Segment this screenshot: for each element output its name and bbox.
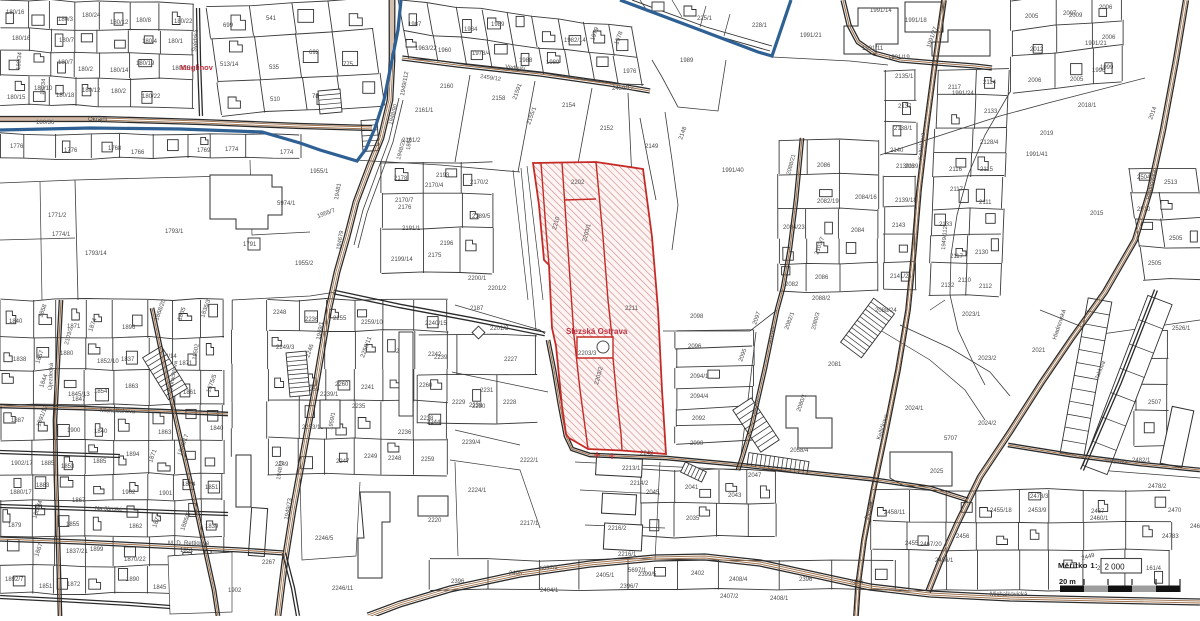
- svg-text:2098: 2098: [690, 314, 704, 320]
- svg-text:2189/5: 2189/5: [472, 214, 491, 220]
- svg-text:1955/2: 1955/2: [295, 261, 314, 267]
- svg-text:M. D. Rettigové: M. D. Rettigové: [168, 541, 210, 547]
- svg-text:2137: 2137: [898, 104, 912, 110]
- svg-text:1885: 1885: [93, 459, 107, 465]
- svg-text:1793/1: 1793/1: [165, 229, 184, 235]
- svg-text:2187: 2187: [470, 306, 484, 312]
- svg-text:2249: 2249: [364, 454, 378, 460]
- svg-text:180/12: 180/12: [82, 88, 101, 94]
- svg-text:2170/7: 2170/7: [395, 198, 414, 204]
- svg-text:2088/24: 2088/24: [875, 308, 897, 314]
- svg-text:180/14: 180/14: [110, 68, 129, 74]
- svg-text:2405/1: 2405/1: [596, 573, 615, 579]
- svg-text:180/18: 180/18: [56, 93, 75, 99]
- svg-text:1991/11: 1991/11: [862, 46, 884, 52]
- svg-text:699: 699: [223, 23, 234, 29]
- svg-text:2507: 2507: [1148, 400, 1162, 406]
- svg-text:2193: 2193: [436, 173, 450, 179]
- svg-text:1851: 1851: [205, 485, 219, 491]
- svg-text:775: 775: [343, 62, 354, 68]
- svg-text:2201/2: 2201/2: [488, 286, 507, 292]
- svg-text:2025: 2025: [930, 469, 944, 475]
- svg-text:2094/4: 2094/4: [690, 394, 709, 400]
- svg-text:2236: 2236: [398, 430, 412, 436]
- svg-text:2006: 2006: [1099, 5, 1113, 11]
- svg-text:1988: 1988: [519, 58, 533, 64]
- svg-text:180/16: 180/16: [6, 10, 25, 16]
- svg-text:1863: 1863: [158, 430, 172, 436]
- svg-text:Okrajní: Okrajní: [88, 117, 108, 123]
- svg-text:1991/40: 1991/40: [722, 168, 744, 174]
- svg-text:1899: 1899: [90, 547, 104, 553]
- svg-text:2478/3: 2478/3: [1030, 494, 1049, 500]
- svg-text:2088/2: 2088/2: [812, 296, 831, 302]
- svg-text:2229: 2229: [452, 400, 466, 406]
- svg-text:2005: 2005: [1025, 14, 1039, 20]
- svg-text:Slezská Ostrava: Slezská Ostrava: [566, 327, 628, 336]
- svg-text:180/3: 180/3: [58, 17, 74, 23]
- svg-text:180/1: 180/1: [168, 39, 184, 45]
- svg-text:2043: 2043: [728, 493, 742, 499]
- svg-text:2082/19: 2082/19: [817, 199, 839, 205]
- svg-text:2259: 2259: [421, 457, 435, 463]
- svg-text:2084/16: 2084/16: [855, 195, 877, 201]
- svg-text:2504: 2504: [1137, 175, 1151, 181]
- svg-text:1853: 1853: [61, 464, 75, 470]
- svg-text:2007: 2007: [1063, 11, 1077, 17]
- svg-text:2407/2: 2407/2: [720, 594, 739, 600]
- svg-text:2248: 2248: [273, 310, 287, 316]
- svg-text:2455/18: 2455/18: [990, 508, 1012, 514]
- svg-text:2456/1: 2456/1: [935, 558, 954, 564]
- svg-text:1887: 1887: [11, 418, 25, 424]
- svg-text:1880/17: 1880/17: [10, 490, 32, 496]
- svg-text:2082: 2082: [785, 282, 799, 288]
- svg-text:1963/22: 1963/22: [415, 46, 437, 52]
- svg-text:180/2: 180/2: [78, 67, 94, 73]
- svg-text:2222/1: 2222/1: [520, 458, 539, 464]
- svg-text:2227: 2227: [504, 357, 518, 363]
- svg-text:2130: 2130: [975, 250, 989, 256]
- svg-text:180/19: 180/19: [136, 61, 155, 67]
- svg-text:2161/1: 2161/1: [415, 108, 434, 114]
- svg-text:2505: 2505: [1169, 236, 1183, 242]
- svg-text:2408/4: 2408/4: [729, 577, 748, 583]
- svg-text:2199/14: 2199/14: [391, 257, 413, 263]
- svg-text:2140: 2140: [890, 148, 904, 154]
- svg-text:2018/1: 2018/1: [1078, 103, 1097, 109]
- svg-text:5707: 5707: [944, 436, 958, 442]
- svg-text:1991/14: 1991/14: [870, 8, 892, 14]
- svg-text:Na Jánské: Na Jánské: [95, 506, 123, 513]
- svg-text:2175: 2175: [428, 253, 442, 259]
- svg-text:2238: 2238: [420, 416, 434, 422]
- svg-text:1872: 1872: [67, 582, 81, 588]
- svg-text:2139: 2139: [905, 164, 919, 170]
- svg-text:2453/9: 2453/9: [1028, 508, 1047, 514]
- svg-text:2224/1: 2224/1: [468, 488, 487, 494]
- svg-text:1776: 1776: [10, 144, 24, 150]
- svg-text:2133: 2133: [984, 109, 998, 115]
- svg-text:2513: 2513: [1164, 180, 1178, 186]
- svg-text:2111: 2111: [979, 200, 992, 206]
- svg-text:2203/3: 2203/3: [578, 351, 597, 357]
- svg-text:2045: 2045: [646, 490, 660, 496]
- svg-text:2110: 2110: [958, 278, 972, 284]
- svg-text:2138/1: 2138/1: [894, 126, 913, 132]
- svg-text:2236: 2236: [305, 317, 319, 323]
- svg-text:1900: 1900: [67, 428, 81, 434]
- svg-text:180/12: 180/12: [110, 20, 129, 26]
- svg-text:2246/5: 2246/5: [315, 536, 334, 542]
- svg-text:1861: 1861: [406, 137, 413, 150]
- svg-text:2086: 2086: [815, 275, 829, 281]
- svg-text:1890: 1890: [126, 577, 140, 583]
- svg-text:2230: 2230: [472, 404, 486, 410]
- svg-text:1863: 1863: [125, 384, 139, 390]
- svg-text:2092: 2092: [692, 416, 706, 422]
- svg-text:2214/2: 2214/2: [630, 481, 649, 487]
- svg-text:2235: 2235: [352, 404, 366, 410]
- svg-text:2015: 2015: [1090, 211, 1104, 217]
- svg-text:2455: 2455: [905, 541, 919, 547]
- svg-text:2149: 2149: [645, 144, 659, 150]
- svg-text:2239/4: 2239/4: [462, 440, 481, 446]
- svg-text:2460/1: 2460/1: [1090, 516, 1109, 522]
- svg-text:1885: 1885: [41, 461, 55, 467]
- svg-text:2035: 2035: [686, 516, 700, 522]
- svg-text:2024/2: 2024/2: [978, 421, 997, 427]
- svg-text:1855: 1855: [66, 522, 80, 528]
- svg-text:180/22: 180/22: [142, 94, 161, 100]
- svg-text:2006: 2006: [1028, 78, 1042, 84]
- svg-text:2456: 2456: [956, 534, 970, 540]
- svg-text:2019: 2019: [1040, 131, 1054, 137]
- svg-text:2213/1: 2213/1: [622, 466, 641, 472]
- svg-text:2 000: 2 000: [1105, 563, 1126, 572]
- svg-text:2012: 2012: [1030, 47, 1044, 53]
- svg-text:1989: 1989: [491, 22, 505, 28]
- svg-text:1894: 1894: [126, 452, 140, 458]
- svg-text:225/1: 225/1: [697, 16, 713, 22]
- svg-text:2240/15: 2240/15: [425, 321, 447, 327]
- svg-text:1976: 1976: [623, 69, 637, 75]
- svg-text:2404/1: 2404/1: [540, 588, 559, 594]
- svg-text:1871: 1871: [179, 361, 193, 367]
- svg-text:1851: 1851: [39, 584, 53, 590]
- svg-text:2116: 2116: [949, 167, 963, 173]
- svg-text:1991/24: 1991/24: [952, 91, 974, 97]
- svg-text:692: 692: [309, 50, 320, 56]
- svg-text:1901: 1901: [159, 491, 173, 497]
- svg-text:24783: 24783: [1162, 534, 1179, 540]
- svg-text:2402: 2402: [691, 571, 705, 577]
- svg-text:1982/14: 1982/14: [564, 38, 586, 44]
- svg-text:Újezdecká: Újezdecká: [47, 362, 55, 390]
- svg-text:180/36: 180/36: [36, 120, 55, 126]
- svg-text:2248: 2248: [388, 456, 402, 462]
- svg-text:1852/10: 1852/10: [97, 359, 119, 365]
- svg-text:1838: 1838: [13, 357, 27, 363]
- svg-text:2114: 2114: [983, 80, 997, 86]
- svg-text:541: 541: [266, 16, 277, 22]
- svg-text:2160: 2160: [440, 84, 454, 90]
- svg-text:2021: 2021: [1032, 348, 1046, 354]
- svg-text:2220: 2220: [428, 518, 442, 524]
- svg-text:1854: 1854: [94, 389, 108, 395]
- svg-text:228/1: 228/1: [752, 23, 768, 29]
- svg-text:2024/1: 2024/1: [905, 406, 924, 412]
- svg-text:2094/1: 2094/1: [690, 374, 709, 380]
- svg-text:2152: 2152: [600, 126, 614, 132]
- svg-text:2482/1: 2482/1: [1132, 458, 1151, 464]
- svg-text:535: 535: [269, 65, 280, 71]
- svg-text:513/14: 513/14: [220, 62, 239, 68]
- svg-text:1991/19: 1991/19: [888, 55, 910, 61]
- svg-text:2408/1: 2408/1: [770, 596, 789, 602]
- svg-text:1840: 1840: [94, 429, 108, 435]
- svg-text:Michalčakova: Michalčakova: [100, 408, 136, 415]
- svg-text:2217/1: 2217/1: [520, 521, 539, 527]
- svg-text:2170/2: 2170/2: [470, 180, 489, 186]
- svg-text:2139/18: 2139/18: [895, 198, 917, 204]
- svg-text:1791: 1791: [243, 242, 257, 248]
- svg-text:2023/1: 2023/1: [962, 312, 981, 318]
- svg-text:1902: 1902: [228, 588, 242, 594]
- svg-text:2467/20: 2467/20: [920, 542, 942, 548]
- svg-text:2470: 2470: [1168, 508, 1182, 514]
- svg-text:2216/1: 2216/1: [618, 552, 637, 558]
- svg-text:2216/2: 2216/2: [608, 526, 627, 532]
- svg-text:2112: 2112: [979, 284, 993, 290]
- svg-text:2154: 2154: [562, 103, 576, 109]
- svg-text:2081: 2081: [828, 362, 842, 368]
- svg-text:2178: 2178: [394, 176, 408, 182]
- svg-text:1896: 1896: [122, 325, 136, 331]
- svg-text:2115: 2115: [980, 167, 994, 173]
- svg-text:2246/11: 2246/11: [332, 586, 354, 592]
- svg-text:1955/1: 1955/1: [310, 169, 329, 175]
- svg-text:Muglinov: Muglinov: [180, 63, 214, 72]
- svg-text:2459/12: 2459/12: [612, 86, 634, 92]
- svg-text:2396/7: 2396/7: [620, 584, 639, 590]
- svg-text:Michalkovická: Michalkovická: [990, 592, 1028, 598]
- svg-text:1845: 1845: [153, 585, 167, 591]
- svg-text:2041: 2041: [685, 485, 699, 491]
- svg-text:1771/2: 1771/2: [48, 213, 67, 219]
- svg-text:2058/4: 2058/4: [790, 448, 809, 454]
- svg-text:2191/1: 2191/1: [402, 226, 421, 232]
- svg-text:180/22: 180/22: [174, 19, 193, 25]
- svg-text:1768: 1768: [108, 146, 122, 152]
- svg-text:2023/2: 2023/2: [978, 356, 997, 362]
- svg-text:1984: 1984: [464, 27, 478, 33]
- svg-text:1870/22: 1870/22: [124, 557, 146, 563]
- svg-text:Měřítko 1:: Měřítko 1:: [1058, 561, 1098, 570]
- svg-text:2260: 2260: [335, 382, 349, 388]
- svg-text:5974/1: 5974/1: [277, 201, 296, 207]
- svg-text:180/15: 180/15: [7, 95, 26, 101]
- svg-text:1837/21: 1837/21: [66, 549, 88, 555]
- svg-text:1766: 1766: [131, 150, 145, 156]
- svg-text:1991/21: 1991/21: [1085, 41, 1107, 47]
- svg-text:2201/3: 2201/3: [490, 326, 509, 332]
- svg-text:2231: 2231: [480, 388, 494, 394]
- svg-text:1861: 1861: [183, 390, 197, 396]
- svg-text:2158: 2158: [492, 96, 506, 102]
- svg-text:1987: 1987: [408, 22, 422, 28]
- svg-text:2170/4: 2170/4: [425, 183, 444, 189]
- svg-text:2505: 2505: [1148, 261, 1162, 267]
- svg-text:1840: 1840: [9, 319, 23, 325]
- svg-text:Bštýřova: Bštýřova: [1105, 458, 1129, 465]
- svg-text:1879: 1879: [8, 523, 22, 529]
- svg-text:1839: 1839: [205, 524, 219, 530]
- svg-text:1774/1: 1774/1: [52, 232, 71, 238]
- svg-text:2047: 2047: [748, 473, 762, 479]
- svg-text:180/2: 180/2: [111, 89, 127, 95]
- svg-text:2247: 2247: [336, 459, 350, 465]
- svg-text:180/8: 180/8: [136, 18, 152, 24]
- svg-text:1892/7: 1892/7: [5, 577, 24, 583]
- svg-text:1991/18: 1991/18: [905, 18, 927, 24]
- svg-text:2117: 2117: [950, 187, 964, 193]
- svg-text:2005: 2005: [1070, 77, 1084, 83]
- svg-text:1978/4: 1978/4: [472, 51, 491, 57]
- svg-text:2259/10: 2259/10: [361, 320, 383, 326]
- svg-text:2117: 2117: [950, 254, 964, 260]
- svg-text:1847: 1847: [72, 397, 86, 403]
- svg-text:2526/1: 2526/1: [1172, 326, 1191, 332]
- svg-text:180/4: 180/4: [142, 39, 158, 45]
- svg-text:1774: 1774: [225, 147, 239, 153]
- svg-text:2396: 2396: [799, 577, 813, 583]
- svg-text:1867: 1867: [72, 498, 86, 504]
- svg-text:1862: 1862: [129, 524, 143, 530]
- svg-text:2202: 2202: [571, 180, 585, 186]
- svg-text:180/16: 180/16: [12, 36, 31, 42]
- svg-text:1991/41: 1991/41: [1026, 152, 1048, 158]
- svg-text:2239: 2239: [434, 355, 448, 361]
- svg-text:1902: 1902: [122, 490, 136, 496]
- svg-text:180/7: 180/7: [59, 38, 75, 44]
- svg-text:1989: 1989: [546, 60, 560, 66]
- svg-text:2135/1: 2135/1: [895, 74, 914, 80]
- svg-text:5697/1: 5697/1: [628, 568, 647, 574]
- svg-text:2132: 2132: [941, 283, 955, 289]
- svg-text:2469: 2469: [1190, 524, 1200, 530]
- svg-text:1837: 1837: [121, 357, 135, 363]
- svg-text:1769: 1769: [197, 148, 211, 154]
- svg-text:1774: 1774: [280, 150, 294, 156]
- svg-text:2211: 2211: [625, 306, 639, 312]
- svg-text:2249/3: 2249/3: [276, 345, 295, 351]
- svg-text:5697/1: 5697/1: [540, 565, 558, 572]
- svg-text:20 m: 20 m: [1059, 577, 1076, 586]
- svg-text:2260: 2260: [419, 383, 433, 389]
- svg-text:2096: 2096: [688, 344, 702, 350]
- svg-text:2143: 2143: [892, 223, 906, 229]
- svg-text:2242: 2242: [640, 451, 654, 457]
- svg-text:2255: 2255: [333, 316, 347, 322]
- svg-text:2086: 2086: [817, 163, 831, 169]
- svg-text:1960: 1960: [438, 48, 452, 54]
- svg-text:2467: 2467: [1091, 509, 1105, 515]
- svg-text:2176: 2176: [398, 205, 412, 211]
- svg-text:2090: 2090: [690, 441, 704, 447]
- svg-text:2196: 2196: [440, 241, 454, 247]
- svg-text:1840: 1840: [210, 426, 224, 432]
- svg-text:2239/1: 2239/1: [320, 392, 339, 398]
- svg-text:161/4: 161/4: [1146, 566, 1162, 572]
- svg-text:1996: 1996: [1092, 68, 1106, 74]
- svg-text:1902/17: 1902/17: [11, 461, 33, 467]
- svg-text:1883: 1883: [36, 483, 50, 489]
- svg-text:2478/2: 2478/2: [1148, 484, 1167, 490]
- svg-text:2228: 2228: [503, 400, 517, 406]
- svg-text:1880: 1880: [60, 351, 74, 357]
- svg-text:180/7: 180/7: [58, 60, 74, 66]
- svg-text:1989: 1989: [680, 58, 694, 64]
- svg-text:1776: 1776: [64, 148, 78, 154]
- svg-text:1991/21: 1991/21: [800, 33, 822, 39]
- svg-text:180/24: 180/24: [82, 13, 101, 19]
- svg-text:510: 510: [270, 97, 281, 103]
- svg-text:2241: 2241: [361, 385, 375, 391]
- svg-text:2267: 2267: [262, 560, 276, 566]
- svg-text:2200/1: 2200/1: [468, 276, 487, 282]
- svg-text:2458/11: 2458/11: [884, 510, 906, 516]
- svg-text:2084: 2084: [851, 228, 865, 234]
- svg-text:1793/14: 1793/14: [85, 251, 107, 257]
